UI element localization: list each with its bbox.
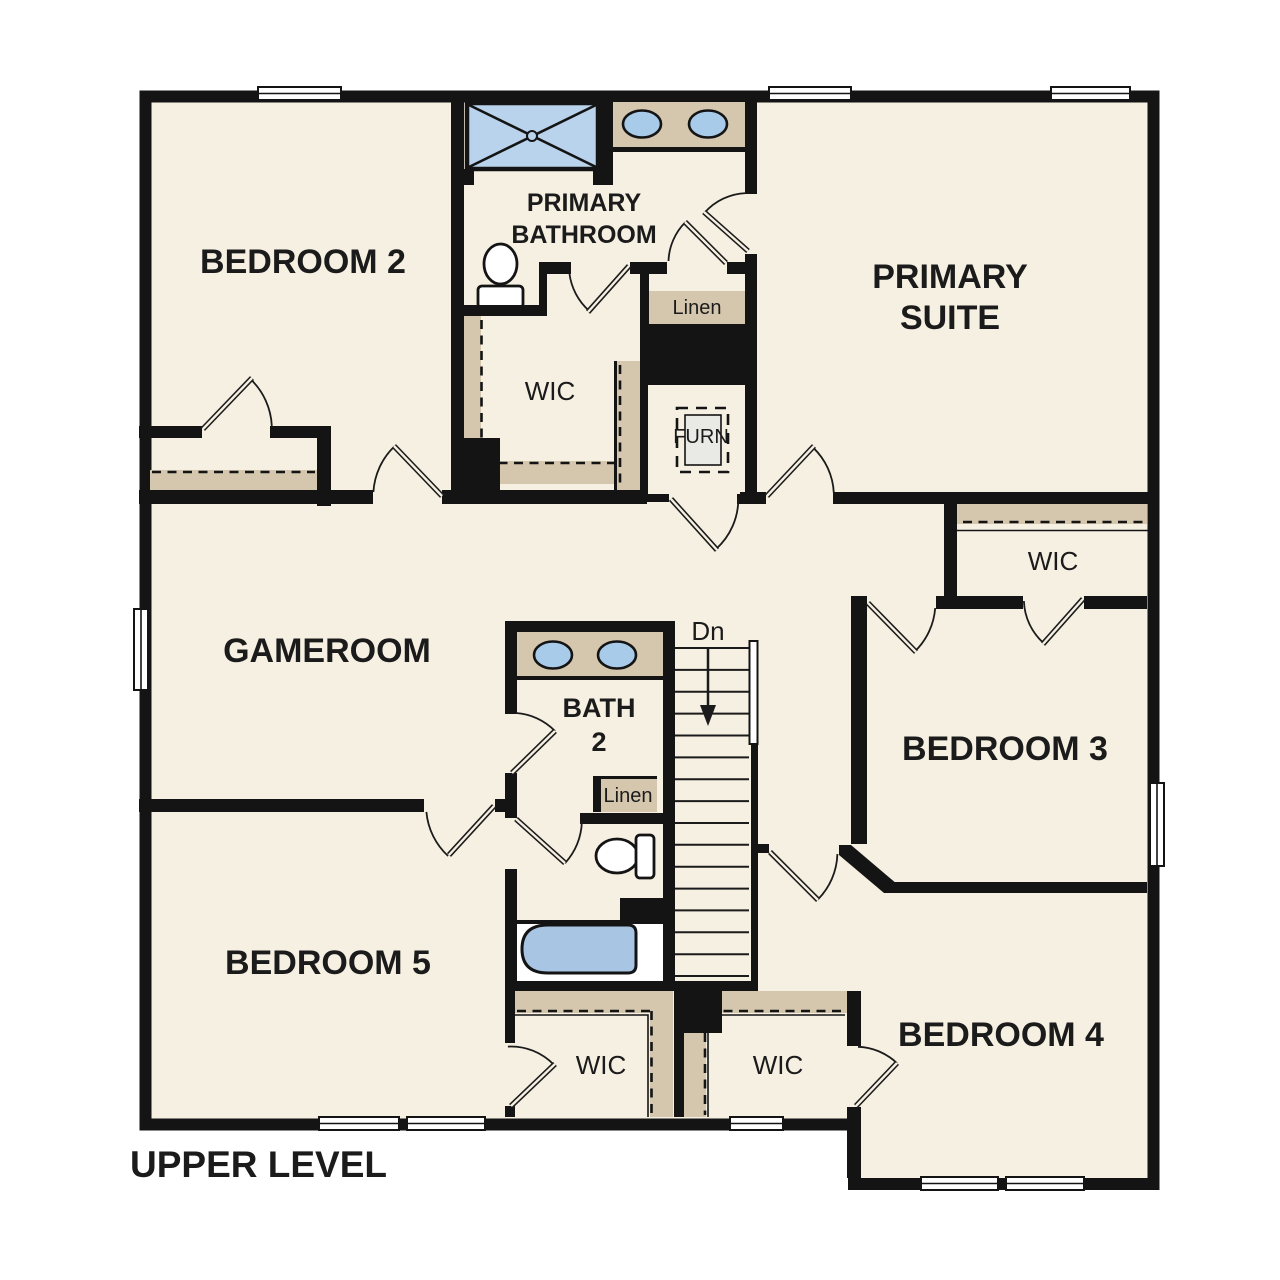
svg-text:BEDROOM 3: BEDROOM 3 — [902, 730, 1108, 768]
svg-text:SUITE: SUITE — [900, 299, 1000, 337]
svg-text:BEDROOM 5: BEDROOM 5 — [225, 944, 431, 982]
svg-text:WIC: WIC — [1028, 546, 1079, 576]
svg-text:PRIMARY: PRIMARY — [527, 189, 642, 217]
svg-text:BEDROOM 4: BEDROOM 4 — [898, 1016, 1104, 1054]
svg-text:Dn: Dn — [691, 616, 724, 646]
svg-text:Linen: Linen — [604, 785, 653, 807]
svg-text:PRIMARY: PRIMARY — [872, 258, 1028, 296]
svg-text:2: 2 — [591, 727, 606, 757]
svg-text:Linen: Linen — [673, 297, 722, 319]
svg-text:UPPER LEVEL: UPPER LEVEL — [130, 1144, 387, 1185]
svg-text:BATHROOM: BATHROOM — [511, 221, 656, 249]
svg-text:BATH: BATH — [563, 693, 636, 723]
svg-text:GAMEROOM: GAMEROOM — [223, 632, 431, 670]
svg-text:FURN: FURN — [673, 426, 729, 448]
svg-text:WIC: WIC — [753, 1050, 804, 1080]
svg-text:WIC: WIC — [525, 376, 576, 406]
svg-text:WIC: WIC — [576, 1050, 627, 1080]
svg-text:BEDROOM 2: BEDROOM 2 — [200, 243, 406, 281]
